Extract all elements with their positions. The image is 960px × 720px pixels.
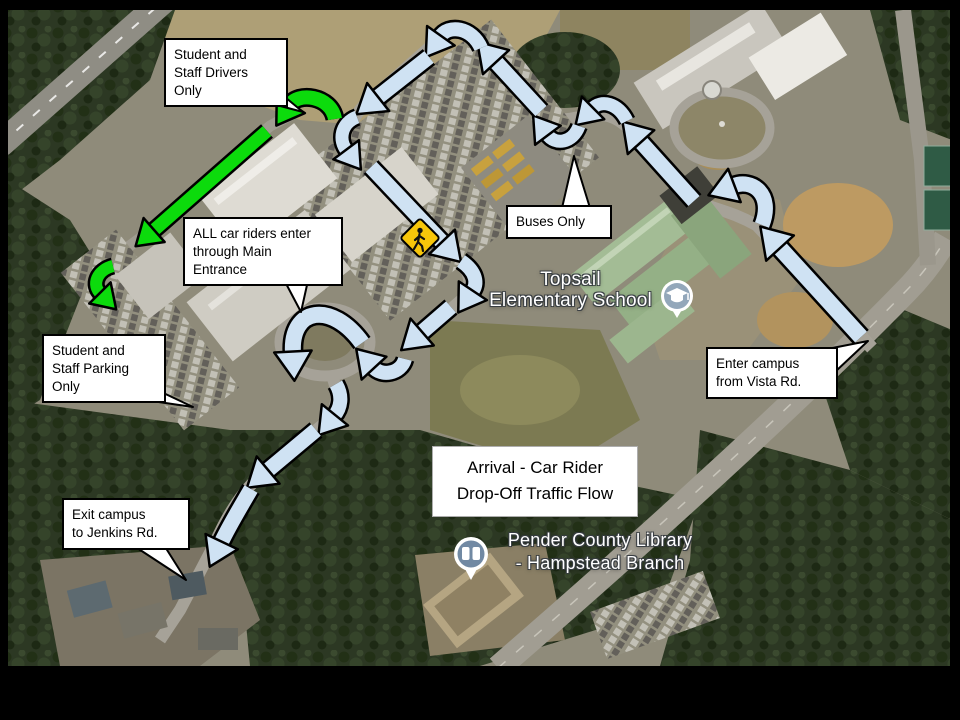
slide-title: Arrival - Car Rider Drop-Off Traffic Flo… xyxy=(432,446,638,517)
callout-exit-campus: Exit campus to Jenkins Rd. xyxy=(62,498,190,550)
callout-all-car-riders: ALL car riders enter through Main Entran… xyxy=(183,217,343,286)
callout-buses-only: Buses Only xyxy=(506,205,612,239)
callout-student-staff-drivers: Student and Staff Drivers Only xyxy=(164,38,288,107)
map-label-pender-county-library: Pender County Library - Hampstead Branch xyxy=(494,529,706,574)
flow-arrow-bus-lane-curve-east xyxy=(576,97,627,126)
callout-enter-campus: Enter campus from Vista Rd. xyxy=(706,347,838,399)
callout-student-staff-parking: Student and Staff Parking Only xyxy=(42,334,166,403)
slide: Student and Staff Drivers Only ALL car r… xyxy=(0,0,960,720)
flow-arrow-staff-parking-turn xyxy=(89,266,116,309)
flow-arrow-west-corner-down xyxy=(333,117,361,170)
map-label-topsail-elementary: Topsail Elementary School xyxy=(478,270,663,312)
